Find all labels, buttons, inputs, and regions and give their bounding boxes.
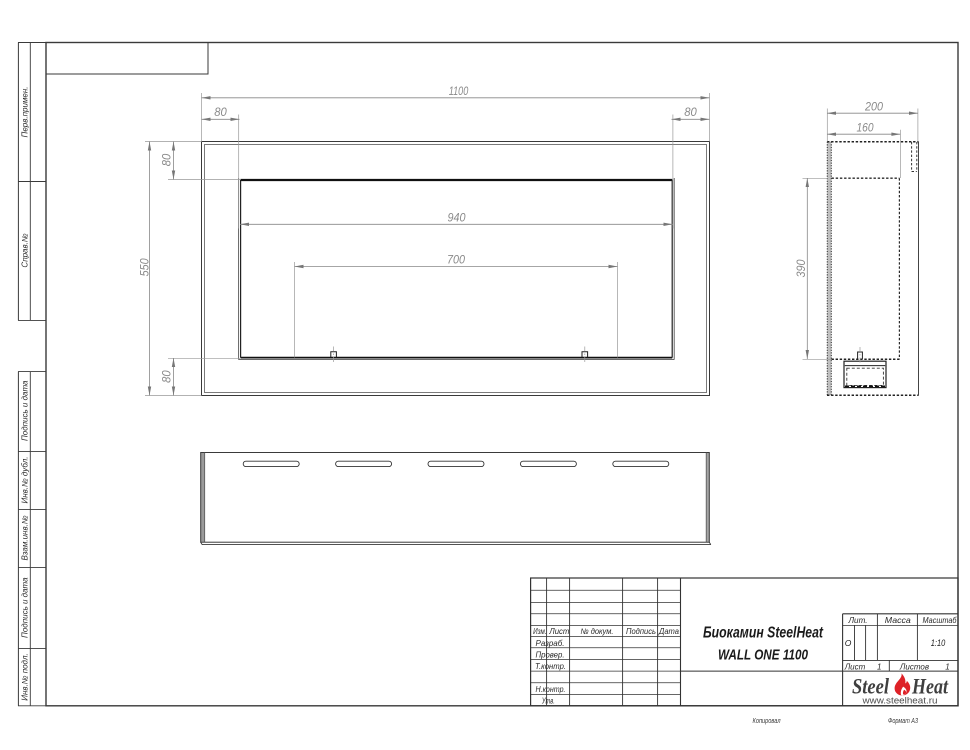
svg-text:550: 550 [140, 258, 152, 277]
svg-text:Формат А3: Формат А3 [888, 716, 919, 725]
svg-text:Справ.№: Справ.№ [21, 233, 30, 267]
svg-text:Биокамин SteelHeat: Биокамин SteelHeat [703, 624, 824, 641]
svg-text:940: 940 [448, 213, 467, 225]
svg-text:Перв.примен.: Перв.примен. [21, 87, 30, 138]
svg-text:700: 700 [447, 255, 466, 267]
svg-text:Инв.№ дубл.: Инв.№ дубл. [21, 457, 30, 504]
svg-text:80: 80 [684, 107, 697, 119]
svg-text:160: 160 [857, 122, 875, 134]
svg-text:1: 1 [945, 663, 949, 672]
svg-text:80: 80 [162, 153, 174, 166]
svg-text:200: 200 [864, 101, 884, 113]
svg-text:Н.контр.: Н.контр. [536, 685, 566, 694]
svg-text:80: 80 [162, 370, 174, 383]
svg-text:1:10: 1:10 [931, 638, 946, 649]
svg-text:Масштаб: Масштаб [923, 616, 957, 625]
svg-text:1100: 1100 [449, 86, 469, 98]
svg-text:1: 1 [877, 663, 881, 672]
svg-text:390: 390 [796, 259, 808, 278]
svg-text:www.steelheat.ru: www.steelheat.ru [861, 696, 937, 707]
svg-text:Лист: Лист [548, 627, 569, 636]
svg-text:Изм.: Изм. [533, 627, 547, 636]
svg-text:Лист: Лист [844, 663, 866, 672]
svg-text:Копировал: Копировал [753, 716, 782, 725]
svg-text:Подпись и дата: Подпись и дата [21, 380, 30, 441]
svg-text:Лит.: Лит. [847, 616, 867, 625]
svg-text:Подпись: Подпись [626, 627, 656, 636]
svg-text:Т.контр.: Т.контр. [535, 662, 566, 671]
svg-text:Разраб.: Разраб. [536, 639, 565, 648]
svg-text:Инв.№ подл.: Инв.№ подл. [21, 653, 30, 700]
svg-text:80: 80 [214, 107, 227, 119]
svg-text:Провер.: Провер. [536, 650, 565, 659]
svg-text:Масса: Масса [885, 616, 912, 625]
svg-text:Взам.инв.№: Взам.инв.№ [21, 515, 30, 560]
svg-text:О: О [845, 638, 852, 648]
svg-text:Утв.: Утв. [541, 697, 555, 706]
svg-text:WALL ONE 1100: WALL ONE 1100 [718, 647, 809, 664]
svg-text:№ докум.: № докум. [581, 627, 614, 636]
svg-text:Дата: Дата [658, 627, 679, 636]
svg-text:Листов: Листов [899, 663, 929, 672]
svg-text:Подпись и дата: Подпись и дата [21, 577, 30, 638]
